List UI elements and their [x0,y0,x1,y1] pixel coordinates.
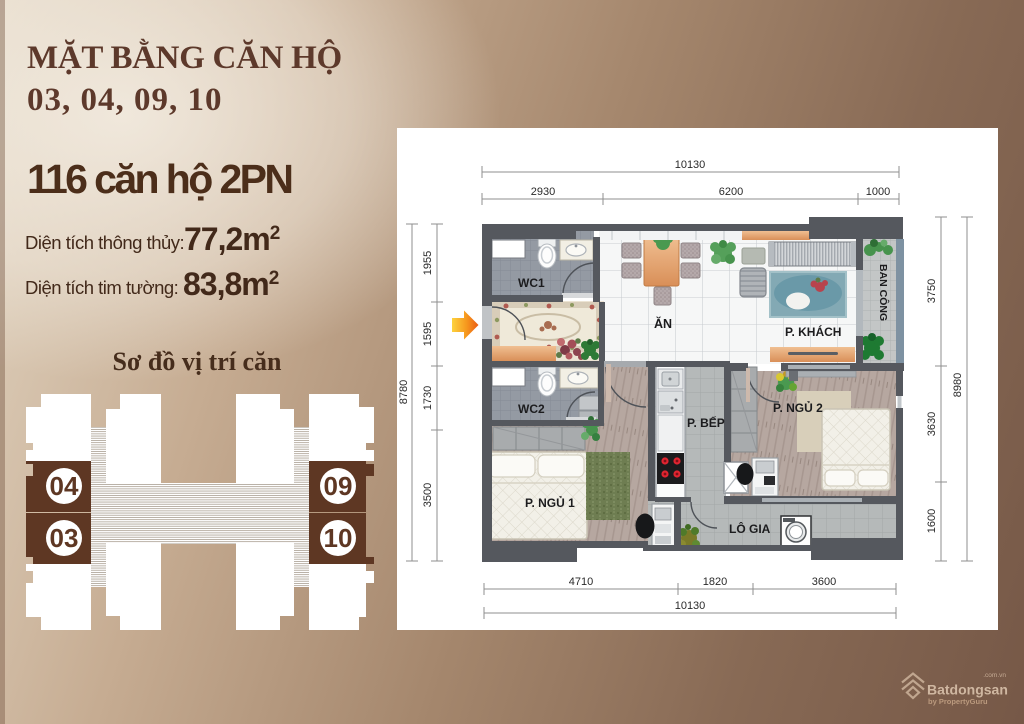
svg-text:ĂN: ĂN [654,316,672,331]
svg-text:1955: 1955 [422,251,434,275]
svg-text:LÔ GIA: LÔ GIA [729,521,771,536]
svg-text:Batdongsan: Batdongsan [927,682,1008,698]
svg-text:3500: 3500 [422,483,434,507]
svg-text:WC2: WC2 [518,402,545,416]
svg-text:WC1: WC1 [518,276,545,290]
svg-text:.com.vn: .com.vn [983,672,1006,679]
svg-text:6200: 6200 [719,186,743,198]
svg-text:03: 03 [50,523,79,553]
svg-text:4710: 4710 [569,576,593,588]
svg-text:10130: 10130 [675,600,706,612]
svg-text:3750: 3750 [926,279,938,303]
svg-text:1600: 1600 [926,509,938,533]
svg-text:P. KHÁCH: P. KHÁCH [785,324,841,339]
svg-text:P. NGỦ 2: P. NGỦ 2 [773,400,823,415]
svg-text:1730: 1730 [422,386,434,410]
svg-text:1595: 1595 [422,322,434,346]
svg-text:P. NGỦ 1: P. NGỦ 1 [525,495,575,510]
svg-text:1820: 1820 [703,576,727,588]
svg-text:04: 04 [50,471,79,501]
svg-text:3630: 3630 [926,412,938,436]
svg-text:1000: 1000 [866,186,890,198]
svg-text:by PropertyGuru: by PropertyGuru [928,697,988,706]
svg-text:10: 10 [324,523,353,553]
svg-text:2930: 2930 [531,186,555,198]
svg-text:8780: 8780 [398,380,410,404]
svg-text:P. BẾP: P. BẾP [687,415,725,430]
svg-text:3600: 3600 [812,576,836,588]
svg-text:09: 09 [324,471,353,501]
svg-text:10130: 10130 [675,159,706,171]
svg-text:BAN CÔNG: BAN CÔNG [877,264,890,321]
svg-text:8980: 8980 [952,373,964,397]
